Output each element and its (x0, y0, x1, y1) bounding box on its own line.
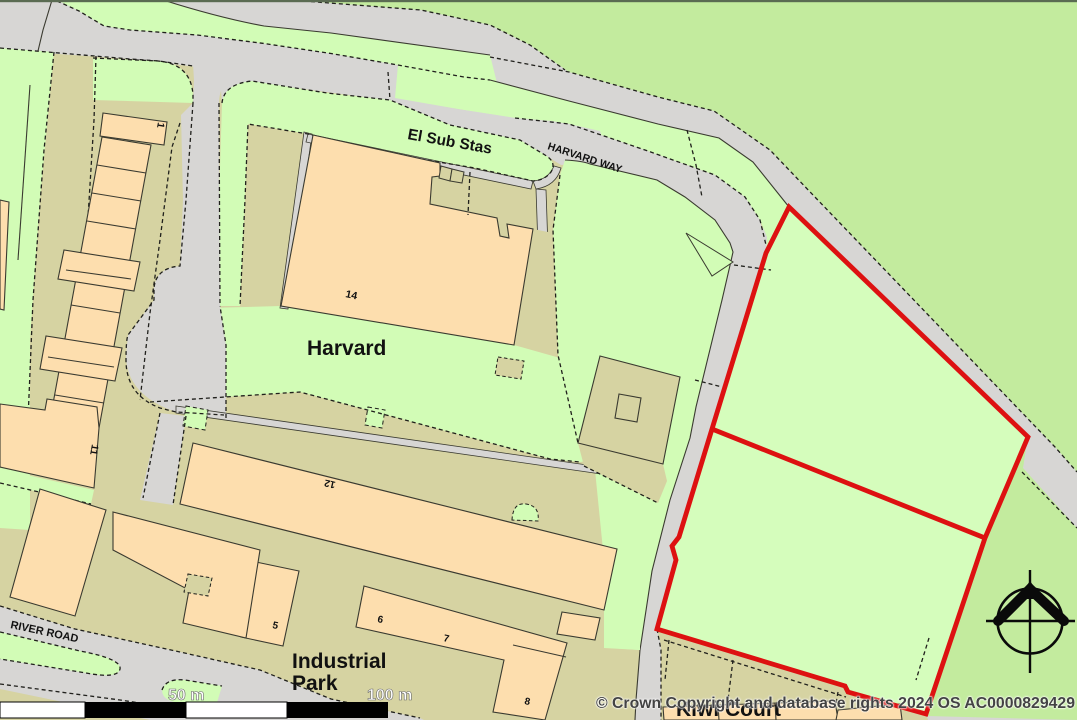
svg-text:© Crown Copyright and database: © Crown Copyright and database rights 20… (596, 695, 1075, 712)
svg-text:50 m: 50 m (168, 687, 204, 704)
svg-text:Harvard: Harvard (307, 337, 386, 360)
svg-text:Industrial: Industrial (292, 650, 387, 673)
svg-text:Park: Park (292, 672, 338, 695)
svg-text:100 m: 100 m (367, 687, 412, 704)
